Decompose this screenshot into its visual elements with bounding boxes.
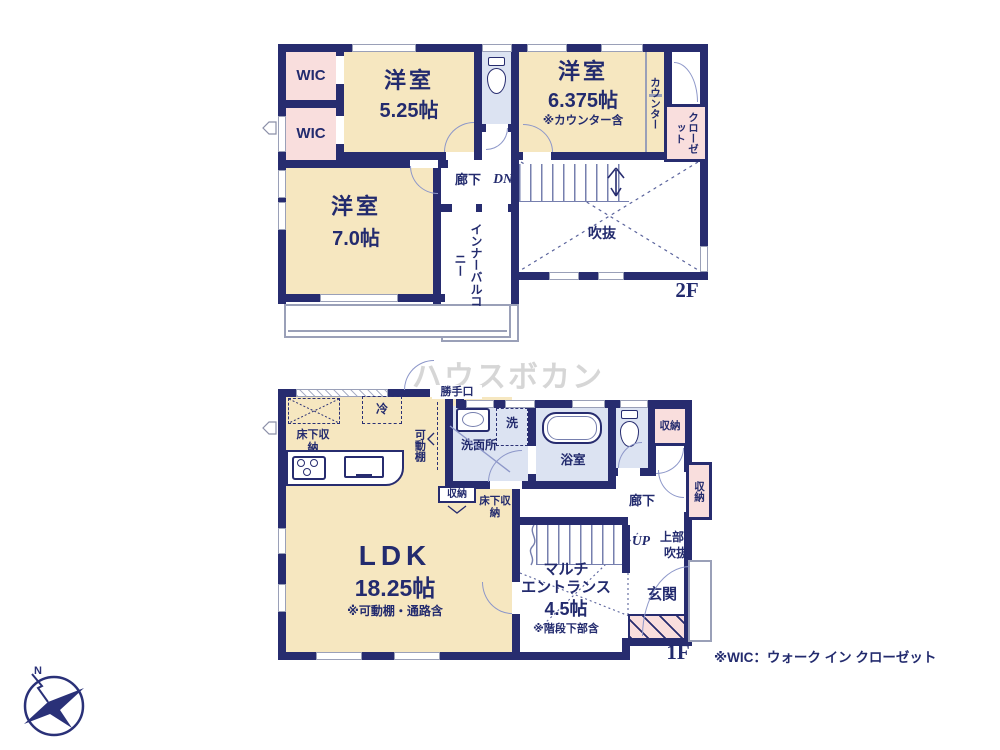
bath-label: 浴室 (550, 452, 596, 468)
compass-icon: N (12, 662, 96, 746)
wall (608, 406, 616, 489)
bedroom2-name: 洋室 (519, 58, 647, 86)
upper-void-label-2: 吹抜 (658, 546, 694, 561)
window (505, 400, 535, 408)
wall (278, 389, 286, 660)
ldk-name: LDK (320, 540, 470, 572)
wic1-label: WIC (286, 58, 336, 94)
floor-storage2-label: 床下収納 (478, 492, 512, 522)
window (620, 400, 648, 408)
wall (700, 44, 708, 280)
storage-top-box: 収納 (652, 406, 688, 446)
bedroom3-size: 7.0帖 (296, 226, 416, 252)
door-gap (482, 204, 508, 212)
window (394, 652, 440, 660)
balcony-rail (284, 304, 511, 338)
bedroom1-size: 5.25帖 (344, 98, 474, 124)
door-gap (446, 152, 474, 160)
entrance-hall-line1: マルチ (514, 561, 618, 578)
floor-storage-cross (288, 398, 340, 424)
window (598, 272, 624, 280)
upper-void-label-1: 上部 (654, 530, 690, 545)
ldk-size: 18.25帖 (320, 574, 470, 602)
window (316, 652, 362, 660)
dn-label: DN (488, 170, 518, 188)
window (278, 584, 286, 612)
wic2-label: WIC (286, 116, 336, 152)
up-label: UP (628, 532, 654, 550)
hall-1f-label: 廊下 (620, 492, 664, 510)
storage-right-label: 収納 (693, 481, 705, 502)
bedroom3-name: 洋室 (296, 192, 416, 222)
window (278, 170, 286, 198)
toilet-tank (621, 410, 638, 419)
window (278, 202, 286, 230)
stove-burner (297, 459, 305, 467)
door-gap (336, 116, 344, 144)
closet-label: クローゼット (673, 109, 699, 157)
window (549, 272, 579, 280)
floor1-label: 1F (658, 640, 698, 664)
stairs-1f (536, 525, 628, 565)
stove-burner (310, 459, 318, 467)
wall (512, 517, 628, 525)
door-gap (528, 446, 536, 474)
wall (664, 44, 672, 112)
bedroom2-size: 6.375帖 (515, 88, 651, 114)
window (466, 400, 494, 408)
movable-shelf-arrow (426, 432, 436, 446)
door-gap (523, 152, 551, 160)
inner-balcony-label: インナーバルコニー (450, 222, 486, 308)
hall-2f-label: 廊下 (450, 172, 486, 188)
window (320, 294, 398, 302)
window (352, 44, 416, 52)
backdoor-label: 勝手口 (432, 385, 482, 399)
stove-burner (303, 468, 311, 476)
door-gap (452, 204, 476, 212)
balcony-rail-line (288, 330, 507, 332)
entrance-door-recess (688, 560, 712, 642)
movable-shelf-line (437, 402, 438, 470)
entrance-hall-note: ※階段下部含 (508, 622, 624, 636)
faucet (356, 474, 372, 477)
window (700, 246, 708, 272)
floor2-label: 2F (666, 278, 708, 302)
door-gap (490, 481, 522, 489)
storage-top-label: 収納 (660, 420, 681, 432)
void-label: 吹抜 (578, 224, 626, 242)
window (601, 44, 643, 52)
bedroom1-name: 洋室 (344, 66, 474, 96)
window (527, 44, 567, 52)
bathtub-inner (547, 416, 597, 440)
fridge-label: 冷 (362, 400, 402, 420)
bedroom2-note: ※カウンター含 (515, 114, 651, 129)
vent-icon (262, 420, 278, 436)
window (572, 400, 605, 408)
wall (278, 100, 344, 108)
window (482, 44, 512, 52)
storage-small-label: 収納 (438, 486, 476, 503)
door-arc (486, 128, 508, 150)
door-gap (336, 56, 344, 84)
storage-fold-mark (446, 505, 468, 515)
window (278, 116, 286, 152)
vent-icon (262, 120, 278, 136)
stairs-down-arrow (598, 162, 634, 204)
door-gap (618, 468, 640, 476)
closet-2f: クローゼット (664, 104, 708, 162)
entrance-hall-size: 4.5帖 (514, 598, 618, 620)
floor-plan-canvas: カウンター クローゼット WIC WIC 洋室 5.25帖 洋室 6.375帖 … (0, 0, 1000, 750)
toilet-tank (488, 57, 505, 66)
wic-note: ※WIC：ウォーク イン クローゼット (714, 646, 944, 664)
entrance-hall-line2: エントランス (506, 579, 626, 596)
window (278, 528, 286, 554)
ldk-note: ※可動棚・通路含 (312, 604, 478, 619)
compass-n: N (34, 665, 42, 677)
wall (474, 44, 482, 160)
storage-right-box: 収納 (686, 462, 712, 520)
